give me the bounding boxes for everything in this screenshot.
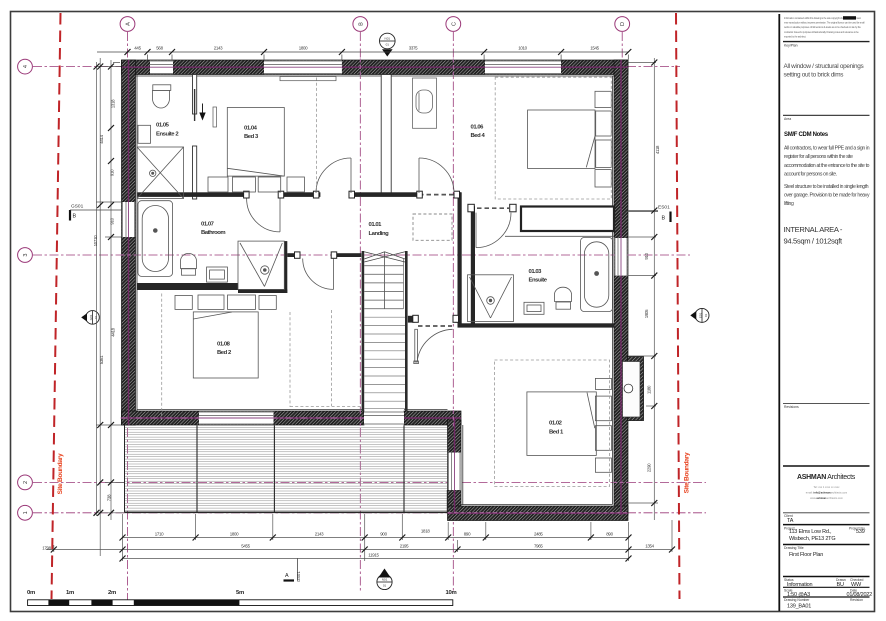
svg-text:1710: 1710: [155, 531, 164, 536]
svg-text:01: 01: [383, 584, 387, 588]
svg-text:setting out to brick dims: setting out to brick dims: [784, 72, 844, 79]
svg-text:Ensuite 2: Ensuite 2: [156, 131, 179, 137]
svg-text:01: 01: [704, 313, 708, 317]
svg-text:10m: 10m: [446, 590, 457, 596]
svg-text:N01: N01: [382, 578, 388, 582]
svg-text:890: 890: [464, 531, 471, 536]
svg-text:01.02: 01.02: [549, 421, 563, 427]
svg-text:Ensuite: Ensuite: [529, 277, 548, 283]
svg-text:Key/Plan: Key/Plan: [784, 43, 798, 47]
svg-text:910: 910: [110, 169, 115, 176]
svg-text:2: 2: [23, 481, 29, 484]
svg-text:01.04: 01.04: [244, 126, 258, 132]
svg-text:Revision: Revision: [850, 598, 863, 602]
svg-text:01.06: 01.06: [471, 125, 485, 131]
svg-text:Bed 4: Bed 4: [471, 133, 486, 139]
svg-text:GS01: GS01: [296, 571, 301, 582]
svg-text:D: D: [620, 22, 626, 26]
svg-text:A: A: [285, 573, 289, 579]
svg-text:1545: 1545: [590, 46, 599, 51]
svg-text:113 Elms Low Rd.,: 113 Elms Low Rd.,: [789, 529, 832, 535]
svg-text:2485: 2485: [534, 531, 543, 536]
svg-text:2m: 2m: [108, 590, 116, 596]
svg-text:910: 910: [110, 217, 115, 224]
svg-text:All window / structural openin: All window / structural openings: [784, 63, 864, 70]
svg-text:5361: 5361: [99, 355, 104, 364]
svg-text:Wisbech, PE13 2TG: Wisbech, PE13 2TG: [789, 536, 835, 542]
svg-text:N01: N01: [385, 37, 391, 41]
svg-text:5m: 5m: [236, 590, 244, 596]
svg-text:B: B: [73, 214, 77, 220]
svg-text:445: 445: [134, 46, 141, 51]
svg-text:Drawing Title: Drawing Title: [784, 546, 804, 550]
svg-text:C: C: [451, 22, 457, 26]
svg-text:1354: 1354: [645, 543, 654, 548]
svg-text:Landing: Landing: [369, 231, 390, 237]
svg-text:1798: 1798: [42, 546, 51, 551]
svg-text:accommodation at the entrance: accommodation at the entrance to the sit…: [784, 163, 870, 169]
svg-text:910: 910: [644, 252, 649, 259]
svg-text:3: 3: [23, 253, 29, 256]
svg-text:139_BA01: 139_BA01: [787, 604, 811, 610]
svg-text:01.08: 01.08: [217, 341, 231, 347]
svg-text:1800: 1800: [299, 46, 308, 51]
svg-text:contractor. Issued to purposes: contractor. Issued to purposes infrastru…: [784, 31, 859, 34]
svg-text:ES01: ES01: [658, 205, 670, 211]
svg-text:01: 01: [386, 43, 390, 47]
svg-text:4414: 4414: [99, 134, 104, 143]
svg-text:900: 900: [380, 531, 387, 536]
svg-text:All contractors, to wear full: All contractors, to wear full PPE and a …: [784, 146, 870, 152]
svg-text:Bathroom: Bathroom: [201, 230, 225, 236]
svg-text:4118: 4118: [655, 145, 660, 154]
svg-text:7965: 7965: [534, 543, 543, 548]
svg-text:1800: 1800: [230, 531, 239, 536]
svg-text:3375: 3375: [409, 46, 418, 51]
svg-text:1m: 1m: [66, 590, 74, 596]
svg-text:over garage. Provision to be m: over garage. Provision to be made for he…: [784, 193, 870, 199]
svg-text:www.ashmanarchitects.com: www.ashmanarchitects.com: [810, 496, 843, 500]
svg-text:1818: 1818: [421, 528, 430, 533]
svg-text:568: 568: [156, 46, 163, 51]
svg-text:1905: 1905: [644, 309, 649, 318]
svg-text:INTERNAL AREA -: INTERNAL AREA -: [784, 225, 843, 234]
svg-text:Site Boundary: Site Boundary: [684, 452, 691, 493]
svg-text:1180: 1180: [647, 385, 652, 394]
svg-text:1: 1: [23, 511, 29, 514]
svg-text:lifting: lifting: [784, 201, 794, 207]
svg-text:ASHMAN Architects: ASHMAN Architects: [797, 474, 856, 481]
svg-text:G01: G01: [89, 314, 93, 320]
svg-text:10710: 10710: [93, 235, 98, 247]
svg-text:5455: 5455: [241, 543, 250, 548]
svg-text:error reproduction without exp: error reproduction without express permi…: [784, 22, 865, 25]
svg-text:890: 890: [606, 531, 613, 536]
svg-text:1010: 1010: [518, 46, 527, 51]
svg-text:2143: 2143: [214, 46, 223, 51]
svg-text:E01: E01: [699, 312, 703, 318]
svg-text:TA: TA: [787, 518, 794, 524]
svg-text:reported to the architect.: reported to the architect.: [784, 35, 806, 38]
svg-text:1318: 1318: [111, 99, 116, 108]
svg-text:Site Boundary: Site Boundary: [57, 453, 64, 494]
svg-text:Bed 1: Bed 1: [549, 429, 564, 435]
svg-text:SM/F CDM Notes: SM/F CDM Notes: [784, 132, 829, 138]
svg-text:email: info@ashmanarchitects.c: email: info@ashmanarchitects.com: [806, 491, 847, 495]
svg-text:01.03: 01.03: [529, 269, 543, 275]
svg-text:2290: 2290: [647, 463, 652, 472]
svg-text:A: A: [126, 22, 132, 26]
svg-text:0m: 0m: [27, 590, 35, 596]
svg-text:2195: 2195: [400, 543, 409, 548]
svg-text:works or valuable purposes. Al: works or valuable purposes. All dimensio…: [784, 26, 862, 29]
svg-text:GS01: GS01: [71, 204, 84, 210]
svg-text:register for all persons withi: register for all persons within the site: [784, 154, 853, 160]
svg-text:2143: 2143: [315, 531, 324, 536]
svg-text:B: B: [662, 216, 666, 222]
svg-text:4418: 4418: [111, 327, 116, 336]
svg-text:Revisions: Revisions: [784, 405, 799, 409]
svg-text:01.07: 01.07: [201, 221, 215, 227]
svg-text:Drawing Number: Drawing Number: [784, 598, 810, 602]
svg-text:Steel structure to be installe: Steel structure to be installed in singl…: [784, 184, 869, 190]
svg-text:Bed 3: Bed 3: [244, 134, 259, 140]
svg-text:B: B: [358, 22, 364, 26]
svg-text:94.5sqm / 1012sqft: 94.5sqm / 1012sqft: [784, 237, 844, 246]
svg-text:Tel: xxx 1 xxxx xx xxxx: Tel: xxx 1 xxxx xx xxxx: [814, 485, 841, 489]
svg-text:First Floor Plan: First Floor Plan: [789, 552, 823, 558]
svg-text:01.05: 01.05: [156, 123, 170, 129]
svg-text:Area: Area: [784, 117, 791, 121]
svg-text:539: 539: [856, 529, 865, 535]
svg-text:738: 738: [107, 494, 112, 501]
svg-text:4: 4: [23, 65, 29, 68]
svg-text:account for persons on site.: account for persons on site.: [784, 172, 837, 178]
svg-text:Bed 2: Bed 2: [217, 350, 232, 356]
svg-text:01.01: 01.01: [369, 222, 383, 228]
svg-text:11915: 11915: [368, 552, 379, 557]
